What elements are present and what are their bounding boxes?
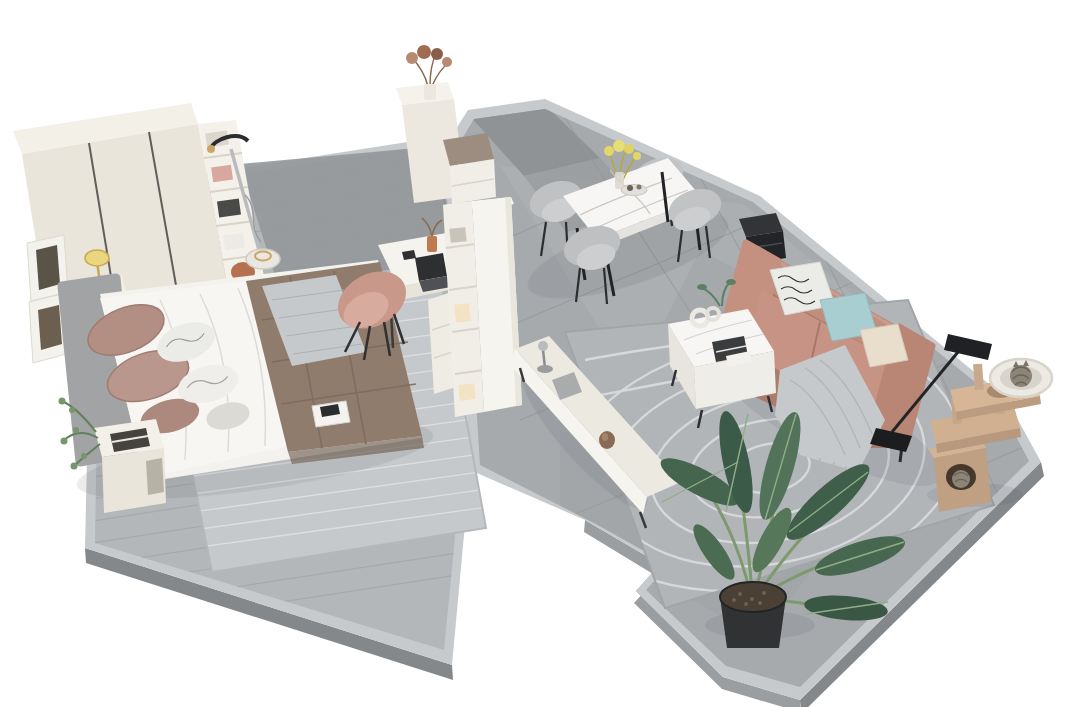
- brown-vase: [599, 431, 615, 449]
- shelf-basket: [217, 199, 241, 218]
- shelf-item: [449, 227, 466, 243]
- nightstand-cubby: [146, 458, 164, 495]
- cat-in-cubby: [952, 470, 970, 488]
- magazine-on-rug: [312, 401, 350, 427]
- cat-tree-top-bed: [990, 359, 1052, 397]
- serving-plate: [621, 185, 647, 196]
- apartment-render: [0, 0, 1083, 707]
- floorplan-canvas: [0, 0, 1083, 707]
- plant-pot: [720, 582, 786, 648]
- divider-bookshelf: [443, 197, 522, 417]
- shelf-glow-2: [458, 383, 476, 401]
- steamer-handle-gold: [207, 145, 215, 153]
- shelf-glow: [454, 303, 471, 322]
- table-lamp-shade: [85, 250, 109, 266]
- shelf-pink-box: [211, 165, 233, 183]
- shelf-shoes: [223, 233, 245, 251]
